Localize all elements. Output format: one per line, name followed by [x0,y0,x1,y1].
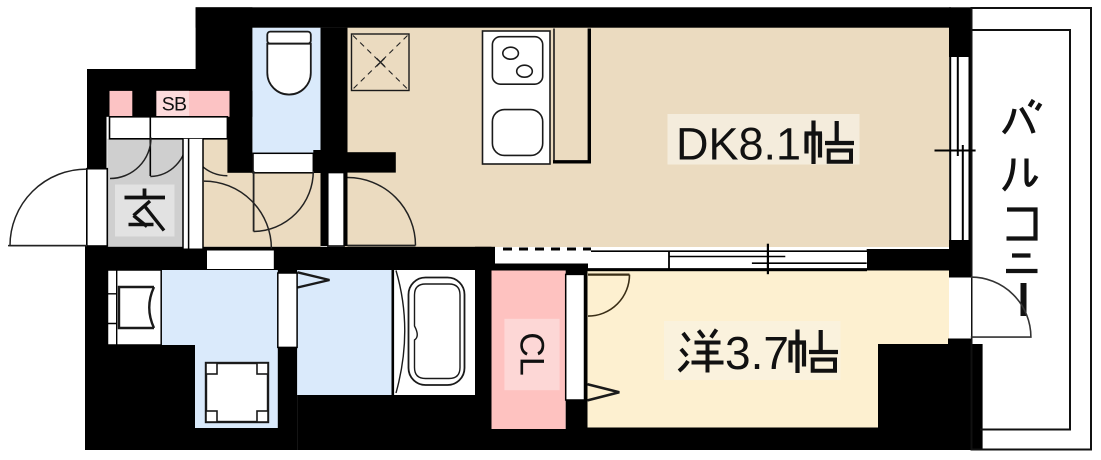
svg-text:CL: CL [513,332,551,375]
svg-text:3.7: 3.7 [725,327,789,379]
svg-text:DK8.1: DK8.1 [676,119,801,170]
svg-text:SB: SB [162,94,186,116]
